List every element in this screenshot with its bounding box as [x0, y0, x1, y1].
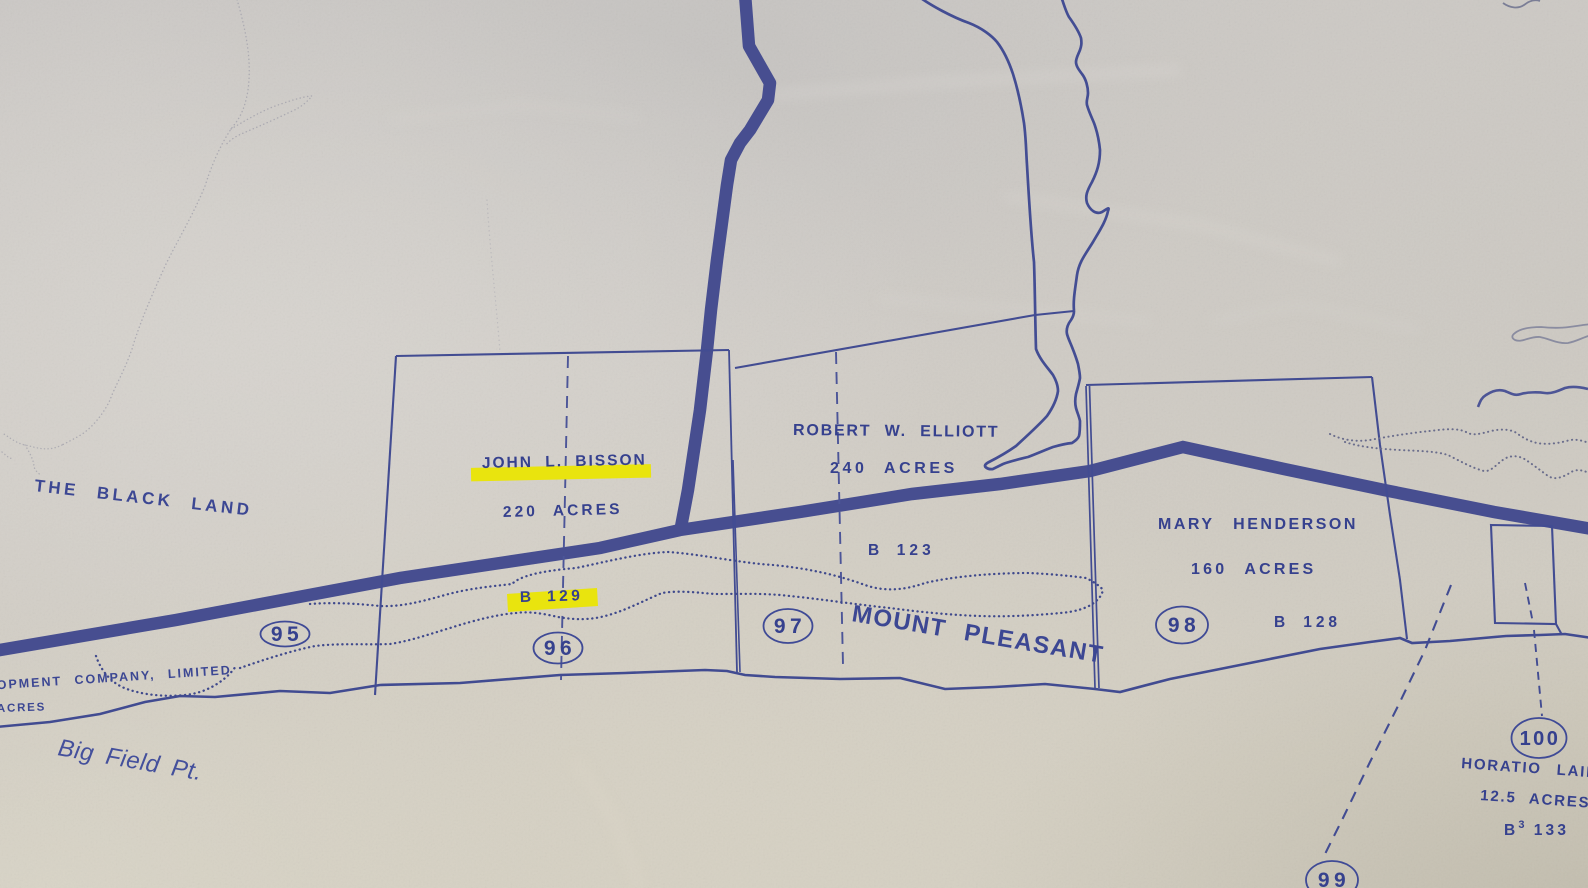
svg-text:MARY HENDERSON: MARY HENDERSON [1158, 516, 1358, 533]
svg-text:B3133: B3133 [1504, 819, 1569, 839]
svg-text:B 129: B 129 [520, 587, 584, 606]
svg-text:JOHN L. BISSON: JOHN L. BISSON [482, 452, 647, 472]
svg-text:100: 100 [1520, 728, 1561, 750]
svg-text:240 ACRES: 240 ACRES [830, 460, 958, 477]
svg-text:ROBERT W. ELLIOTT: ROBERT W. ELLIOTT [793, 422, 1000, 441]
svg-text:160 ACRES: 160 ACRES [1191, 561, 1316, 578]
svg-text:220 ACRES: 220 ACRES [503, 501, 623, 521]
svg-text:95: 95 [271, 623, 303, 646]
svg-text:96: 96 [544, 637, 576, 660]
svg-text:ACRES: ACRES [0, 701, 46, 715]
svg-text:B 128: B 128 [1274, 614, 1341, 631]
svg-text:98: 98 [1168, 614, 1200, 637]
svg-text:99: 99 [1318, 869, 1350, 888]
svg-text:97: 97 [774, 615, 806, 638]
svg-text:B 123: B 123 [868, 542, 935, 559]
